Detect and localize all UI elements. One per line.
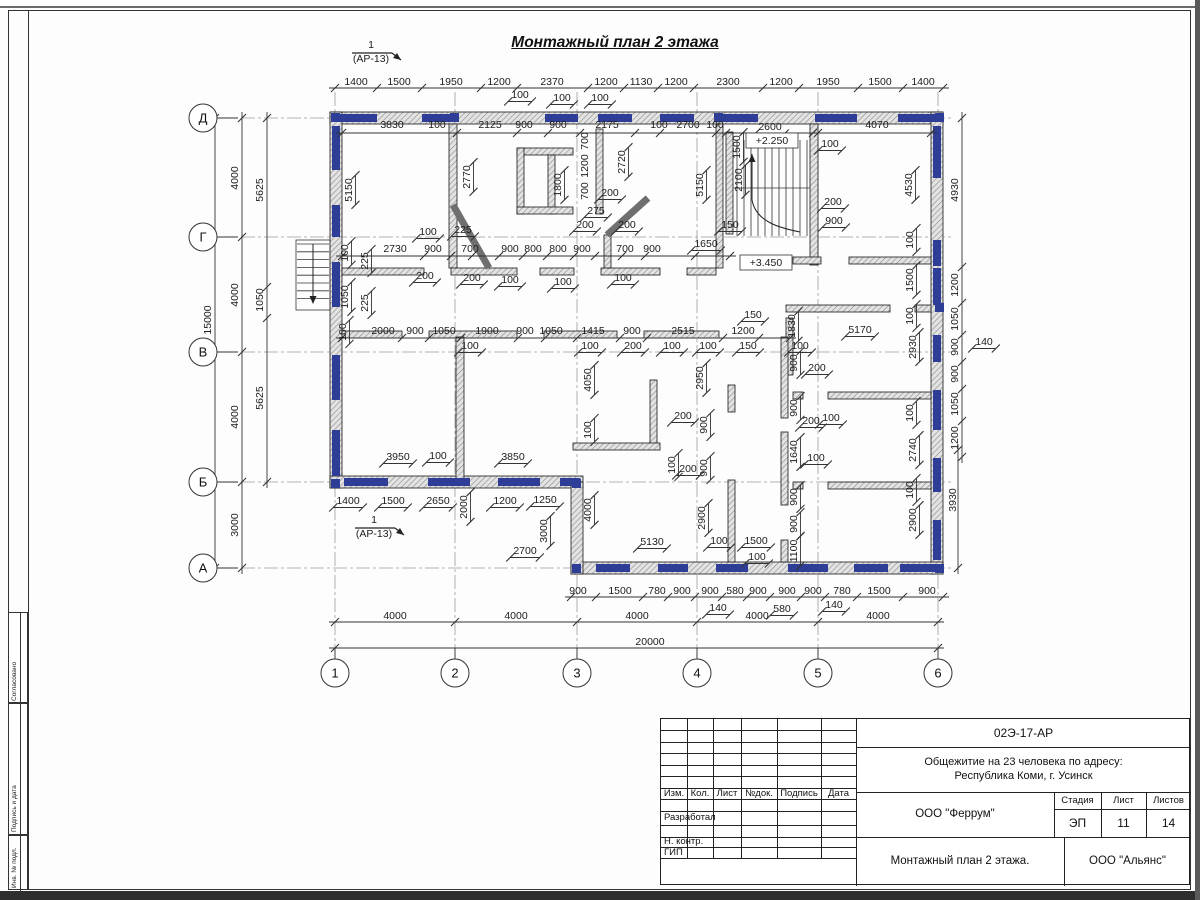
- dim-label: 900: [918, 585, 936, 597]
- dim-label: 3950: [386, 451, 410, 463]
- dim-label: 1400: [336, 495, 360, 507]
- dim-label: 2900: [907, 508, 919, 532]
- dim-label: 900: [788, 488, 800, 506]
- dim-label: 4000: [383, 610, 407, 622]
- dim-label: 2300: [716, 76, 740, 88]
- dim-label: 100: [591, 92, 609, 104]
- dim-label: 4000: [745, 610, 769, 622]
- tb-project-line2: Республика Коми, г. Усинск: [954, 770, 1092, 783]
- tb-col-izm: Изм.: [661, 788, 687, 799]
- tb-col-data: Дата: [821, 788, 856, 799]
- tb-row-gip: ГИП: [661, 847, 741, 858]
- dim-label: 100: [748, 551, 766, 563]
- tb-contractor-org: ООО "Альянс": [1064, 837, 1191, 886]
- axis-bubble-label: 4: [693, 666, 700, 681]
- dim-label: 1200: [731, 325, 755, 337]
- dim-label: 700: [579, 132, 591, 150]
- dim-label: 100: [822, 412, 840, 424]
- dim-label: 1800: [552, 173, 564, 197]
- tb-row-ncontr: Н. контр.: [661, 837, 741, 847]
- dim-label: 5130: [640, 536, 664, 548]
- dim-label: 200: [824, 196, 842, 208]
- dim-label: 3850: [501, 451, 525, 463]
- dim-label: 1200: [769, 76, 793, 88]
- axis-bubble-label: 5: [814, 666, 821, 681]
- dim-label: 100: [666, 456, 678, 474]
- dim-label: 580: [773, 603, 791, 615]
- dim-label: 20000: [635, 636, 664, 648]
- dim-label: 100: [339, 244, 351, 262]
- plan-title: Монтажный план 2 этажа: [470, 34, 760, 52]
- dim-label: 100: [904, 307, 916, 325]
- dim-label: 1500: [387, 76, 411, 88]
- dim-label: 900: [623, 325, 641, 337]
- dim-label: 1415: [581, 325, 605, 337]
- tb-col-list: Лист: [713, 788, 741, 799]
- dim-label: 2100: [733, 168, 745, 192]
- dim-label: 900: [643, 243, 661, 255]
- dim-label: 900: [949, 338, 961, 356]
- dim-label: 1250: [533, 494, 557, 506]
- tb-col-kol: Кол.: [687, 788, 713, 799]
- dim-label: 100: [650, 119, 668, 131]
- dim-label: 100: [706, 119, 724, 131]
- dim-label: 900: [424, 243, 442, 255]
- dim-label: 4000: [229, 283, 241, 307]
- title-block: Изм. Кол. Лист №док. Подпись Дата Разраб…: [660, 718, 1190, 885]
- dim-label: 900: [701, 585, 719, 597]
- dim-label: 900: [573, 243, 591, 255]
- dim-label: 4000: [625, 610, 649, 622]
- axis-bubble-label: 1: [331, 666, 338, 681]
- drawing-sheet: 1400150019501200237012001130120023001200…: [0, 0, 1200, 900]
- dim-label: 100: [553, 92, 571, 104]
- dim-label: 900: [788, 515, 800, 533]
- dim-label: 200: [576, 219, 594, 231]
- dim-label: 900: [549, 119, 567, 131]
- dim-label: 580: [726, 585, 744, 597]
- side-stamp-box-1: Согласовано: [8, 612, 28, 703]
- dim-label: 4070: [865, 119, 889, 131]
- axis-bubble-label: Б: [199, 475, 208, 490]
- dim-label: 3830: [380, 119, 404, 131]
- tb-sheets-total: 14: [1146, 809, 1191, 837]
- dim-label: 100: [337, 323, 349, 341]
- dim-label: 1200: [949, 273, 961, 297]
- dim-label: 900: [698, 416, 710, 434]
- dim-label: 1200: [664, 76, 688, 88]
- dim-label: 1950: [439, 76, 463, 88]
- dim-label: 2770: [461, 165, 473, 189]
- dim-label: 100: [511, 89, 529, 101]
- dim-label: 200: [802, 415, 820, 427]
- dim-label: 1500: [904, 268, 916, 292]
- tb-col-dok: №док.: [741, 788, 777, 799]
- tb-project-line1: Общежитие на 23 человека по адресу:: [924, 756, 1122, 769]
- dim-label: 1: [368, 39, 374, 51]
- dim-label: 200: [601, 187, 619, 199]
- tb-sheet-title: Монтажный план 2 этажа.: [856, 837, 1064, 886]
- dim-label: 4050: [582, 368, 594, 392]
- dim-label: 1050: [949, 392, 961, 416]
- dim-label: 140: [709, 602, 727, 614]
- dim-label: 2950: [694, 366, 706, 390]
- dim-label: 140: [825, 599, 843, 611]
- dim-label: 1500: [381, 495, 405, 507]
- dim-label: 4000: [229, 405, 241, 429]
- tb-sheet-label: Лист: [1101, 792, 1146, 809]
- dim-label: 800: [524, 243, 542, 255]
- tb-row-developed: Разработал: [661, 811, 741, 825]
- dim-label: 1130: [630, 76, 653, 88]
- dim-label: 1900: [475, 325, 499, 337]
- dim-label: 1400: [911, 76, 935, 88]
- dim-label: 700: [461, 243, 479, 255]
- dim-label: 5150: [694, 173, 706, 197]
- dim-label: 2175: [595, 119, 619, 131]
- dim-label: 100: [663, 340, 681, 352]
- dim-label: 900: [406, 325, 424, 337]
- dim-label: 900: [501, 243, 519, 255]
- dim-label: 150: [721, 219, 739, 231]
- dim-label: 900: [788, 354, 800, 372]
- axis-bubble-label: В: [199, 345, 208, 360]
- dim-label: 900: [949, 365, 961, 383]
- dim-label: 1500: [867, 585, 891, 597]
- dim-label: 100: [699, 340, 717, 352]
- dim-label: 1050: [254, 288, 266, 312]
- dim-label: (АР-13): [353, 53, 389, 65]
- dim-label: 100: [807, 452, 825, 464]
- dim-label: 100: [428, 119, 446, 131]
- tb-col-podpis: Подпись: [777, 788, 821, 799]
- dim-label: 100: [581, 340, 599, 352]
- dim-label: 1500: [868, 76, 892, 88]
- dim-label: +2.250: [756, 135, 789, 147]
- dim-label: 100: [614, 272, 632, 284]
- dim-label: 100: [582, 421, 594, 439]
- dim-label: 780: [648, 585, 666, 597]
- axis-bubble-label: 3: [573, 666, 580, 681]
- dim-label: 200: [679, 463, 697, 475]
- dim-label: 1200: [594, 76, 618, 88]
- dim-label: 100: [710, 535, 728, 547]
- tb-designer-org: ООО "Феррум": [856, 792, 1054, 837]
- dim-label: 15000: [202, 305, 214, 334]
- dim-label: 100: [419, 226, 437, 238]
- dim-label: 2930: [907, 335, 919, 359]
- dim-label: 4000: [582, 498, 594, 522]
- axis-bubble-label: Д: [199, 111, 208, 126]
- dim-label: 200: [463, 272, 481, 284]
- tb-doc-number: 02Э-17-АР: [856, 719, 1191, 747]
- dim-label: 100: [461, 340, 479, 352]
- dim-label: 4000: [504, 610, 528, 622]
- dim-label: 2000: [371, 325, 395, 337]
- dim-label: 140: [975, 336, 993, 348]
- dim-label: 200: [618, 219, 636, 231]
- dim-label: 900: [515, 119, 533, 131]
- dim-label: 900: [698, 459, 710, 477]
- tb-sheets-label: Листов: [1146, 792, 1191, 809]
- dim-label: 5150: [343, 178, 355, 202]
- dim-label: 100: [791, 340, 809, 352]
- axis-bubble-label: Г: [199, 230, 206, 245]
- dim-label: 700: [616, 243, 634, 255]
- tb-project-name: Общежитие на 23 человека по адресу: Респ…: [856, 747, 1191, 792]
- dim-label: 150: [744, 309, 762, 321]
- dim-label: 4000: [229, 166, 241, 190]
- dim-label: 1640: [788, 440, 800, 464]
- dim-label: 900: [788, 399, 800, 417]
- dim-label: 900: [516, 325, 534, 337]
- dim-label: 1050: [539, 325, 563, 337]
- dim-label: 2700: [676, 119, 700, 131]
- dim-label: 3000: [229, 513, 241, 537]
- dim-label: 1200: [493, 495, 517, 507]
- dim-label: 225: [359, 294, 371, 312]
- dim-label: 1650: [694, 238, 718, 250]
- side-stamp-box-2: Подпись и дата: [8, 703, 28, 835]
- dim-label: 900: [804, 585, 822, 597]
- dim-label: 1: [371, 514, 377, 526]
- side-stamp-label-signature-date: Подпись и дата: [11, 785, 18, 832]
- axis-bubble-label: 2: [451, 666, 458, 681]
- side-stamp-label-inv: Инв. № подл.: [11, 848, 18, 889]
- dim-label: 2730: [383, 243, 407, 255]
- tb-stage-label: Стадия: [1054, 792, 1101, 809]
- dim-label: 3000: [538, 519, 550, 543]
- dim-label: 4530: [903, 173, 915, 197]
- dim-label: 225: [454, 224, 472, 236]
- dim-label: 225: [359, 252, 371, 270]
- dim-label: 2900: [696, 506, 708, 530]
- dim-label: 2000: [458, 495, 470, 519]
- dim-label: 1050: [432, 325, 456, 337]
- dimension-labels: 1400150019501200237012001130120023001200…: [202, 39, 993, 648]
- dim-label: 3930: [947, 488, 959, 512]
- dim-label: (АР-13): [356, 528, 392, 540]
- dim-label: +3.450: [750, 257, 783, 269]
- tb-sheet-number: 11: [1101, 809, 1146, 837]
- dim-label: 2515: [671, 325, 695, 337]
- dim-label: 5170: [848, 324, 872, 336]
- dim-label: 2700: [513, 545, 537, 557]
- dim-label: 900: [825, 215, 843, 227]
- dim-label: 2370: [540, 76, 564, 88]
- dim-label: 1100: [788, 540, 800, 563]
- dim-label: 1200: [579, 154, 591, 178]
- axis-bubble-label: А: [199, 561, 208, 576]
- dim-label: 100: [821, 138, 839, 150]
- dim-label: 100: [904, 231, 916, 249]
- dim-label: 2740: [907, 438, 919, 462]
- tb-stage-value: ЭП: [1054, 809, 1101, 837]
- dim-label: 900: [749, 585, 767, 597]
- dim-label: 2125: [478, 119, 502, 131]
- dim-label: 200: [624, 340, 642, 352]
- dim-label: 1950: [816, 76, 840, 88]
- dim-label: 150: [739, 340, 757, 352]
- side-stamp-box-3: Инв. № подл.: [8, 835, 28, 890]
- dim-label: 1050: [949, 307, 961, 331]
- dim-label: 5625: [254, 386, 266, 410]
- dim-label: 900: [673, 585, 691, 597]
- dim-label: 780: [833, 585, 851, 597]
- dim-label: 1500: [731, 135, 743, 159]
- dim-label: 1500: [608, 585, 632, 597]
- axis-bubble-label: 6: [934, 666, 941, 681]
- dim-label: 200: [674, 410, 692, 422]
- side-stamp-label-agreed: Согласовано: [11, 662, 18, 701]
- dim-label: 1200: [487, 76, 511, 88]
- dim-label: 1400: [344, 76, 368, 88]
- dim-label: 2720: [616, 150, 628, 174]
- dim-label: 100: [501, 274, 519, 286]
- dim-label: 4930: [949, 178, 961, 202]
- dim-label: 200: [416, 270, 434, 282]
- dim-label: 900: [778, 585, 796, 597]
- dim-label: 1830: [786, 314, 798, 338]
- dim-label: 100: [904, 481, 916, 499]
- dim-label: 900: [569, 585, 587, 597]
- dim-label: 2600: [758, 121, 782, 133]
- dim-label: 5625: [254, 178, 266, 202]
- dim-label: 100: [429, 450, 447, 462]
- dim-label: 1050: [339, 285, 351, 309]
- dim-label: 1200: [949, 426, 961, 450]
- dim-label: 1500: [744, 535, 768, 547]
- dim-label: 200: [808, 362, 826, 374]
- dim-label: 100: [554, 276, 572, 288]
- dim-label: 100: [904, 404, 916, 422]
- dim-label: 2650: [426, 495, 450, 507]
- dim-label: 275: [587, 205, 605, 217]
- dim-label: 700: [579, 182, 591, 200]
- dim-label: 800: [549, 243, 567, 255]
- dim-label: 4000: [866, 610, 890, 622]
